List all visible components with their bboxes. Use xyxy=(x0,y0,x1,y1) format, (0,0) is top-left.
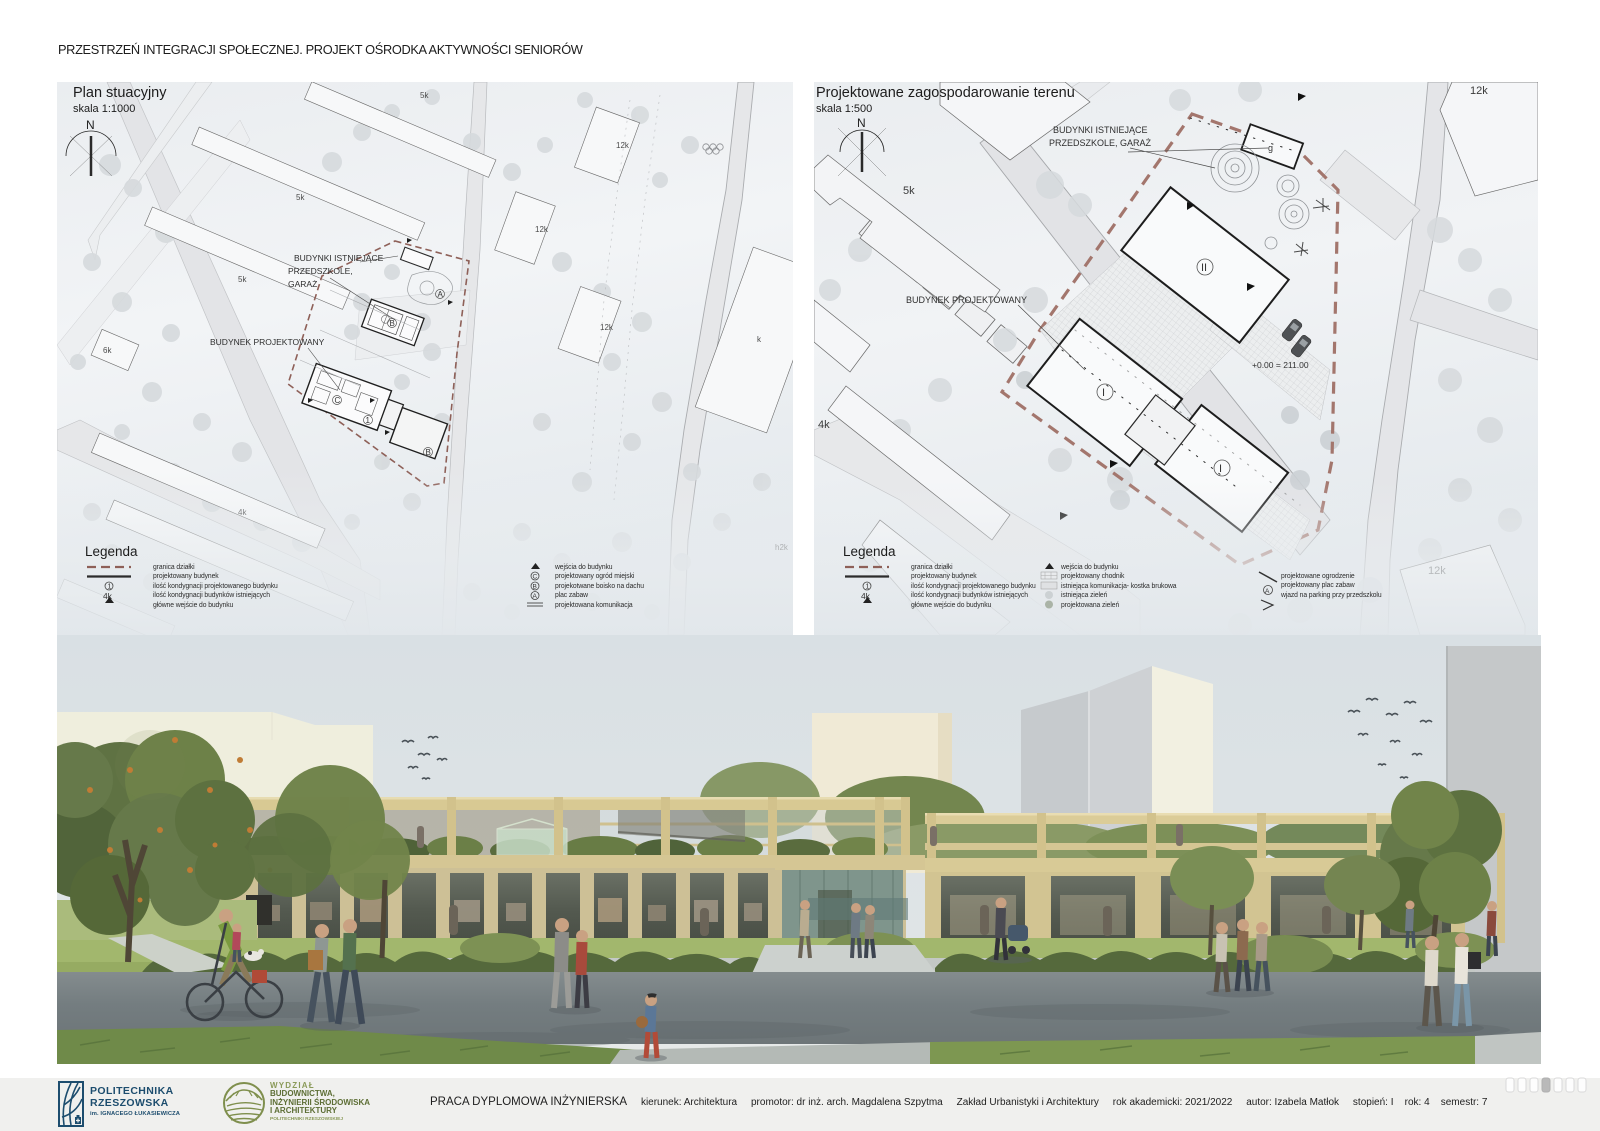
svg-text:Projektowane zagospodarowanie: Projektowane zagospodarowanie terenu xyxy=(816,85,1075,101)
svg-text:A: A xyxy=(438,290,444,299)
svg-text:5k: 5k xyxy=(903,185,915,197)
svg-text:II: II xyxy=(1201,262,1207,274)
svg-text:BUDYNEK PROJEKTOWANY: BUDYNEK PROJEKTOWANY xyxy=(210,337,325,347)
svg-text:12k: 12k xyxy=(616,141,630,150)
svg-text:12k: 12k xyxy=(600,323,614,332)
svg-text:BUDYNEK PROJEKTOWANY: BUDYNEK PROJEKTOWANY xyxy=(906,295,1027,305)
svg-text:+0.00 = 211.00: +0.00 = 211.00 xyxy=(1252,360,1309,370)
svg-text:N: N xyxy=(857,116,866,130)
svg-text:1: 1 xyxy=(108,584,112,591)
svg-text:skala 1:500: skala 1:500 xyxy=(816,103,872,115)
svg-text:B: B xyxy=(533,584,537,591)
svg-text:N: N xyxy=(86,118,95,132)
svg-text:skala 1:1000: skala 1:1000 xyxy=(73,103,135,115)
svg-text:I: I xyxy=(1102,387,1105,399)
svg-text:C: C xyxy=(335,396,341,405)
svg-text:5k: 5k xyxy=(420,91,429,100)
svg-text:1: 1 xyxy=(366,416,371,425)
svg-text:12k: 12k xyxy=(535,225,549,234)
svg-text:5k: 5k xyxy=(238,275,247,284)
svg-text:5k: 5k xyxy=(296,193,305,202)
svg-text:B: B xyxy=(426,448,431,457)
svg-text:Plan stuacyjny: Plan stuacyjny xyxy=(73,85,167,101)
svg-text:PRZEDSZKOLE,: PRZEDSZKOLE, xyxy=(288,266,353,276)
svg-text:4k: 4k xyxy=(818,419,830,431)
svg-text:BUDYNKI ISTNIEJĄCE: BUDYNKI ISTNIEJĄCE xyxy=(1053,125,1148,135)
svg-text:6k: 6k xyxy=(103,346,112,355)
svg-text:12k: 12k xyxy=(1470,85,1488,97)
svg-text:g: g xyxy=(1268,143,1273,153)
svg-text:PRZEDSZKOLE, GARAŻ: PRZEDSZKOLE, GARAŻ xyxy=(1049,138,1152,148)
svg-text:BUDYNKI ISTNIEJĄCE: BUDYNKI ISTNIEJĄCE xyxy=(294,253,384,263)
svg-text:C: C xyxy=(533,574,538,581)
svg-text:B: B xyxy=(390,319,395,328)
svg-text:1: 1 xyxy=(866,584,870,591)
svg-text:I: I xyxy=(1219,463,1222,475)
svg-text:GARAŻ: GARAŻ xyxy=(288,279,317,289)
